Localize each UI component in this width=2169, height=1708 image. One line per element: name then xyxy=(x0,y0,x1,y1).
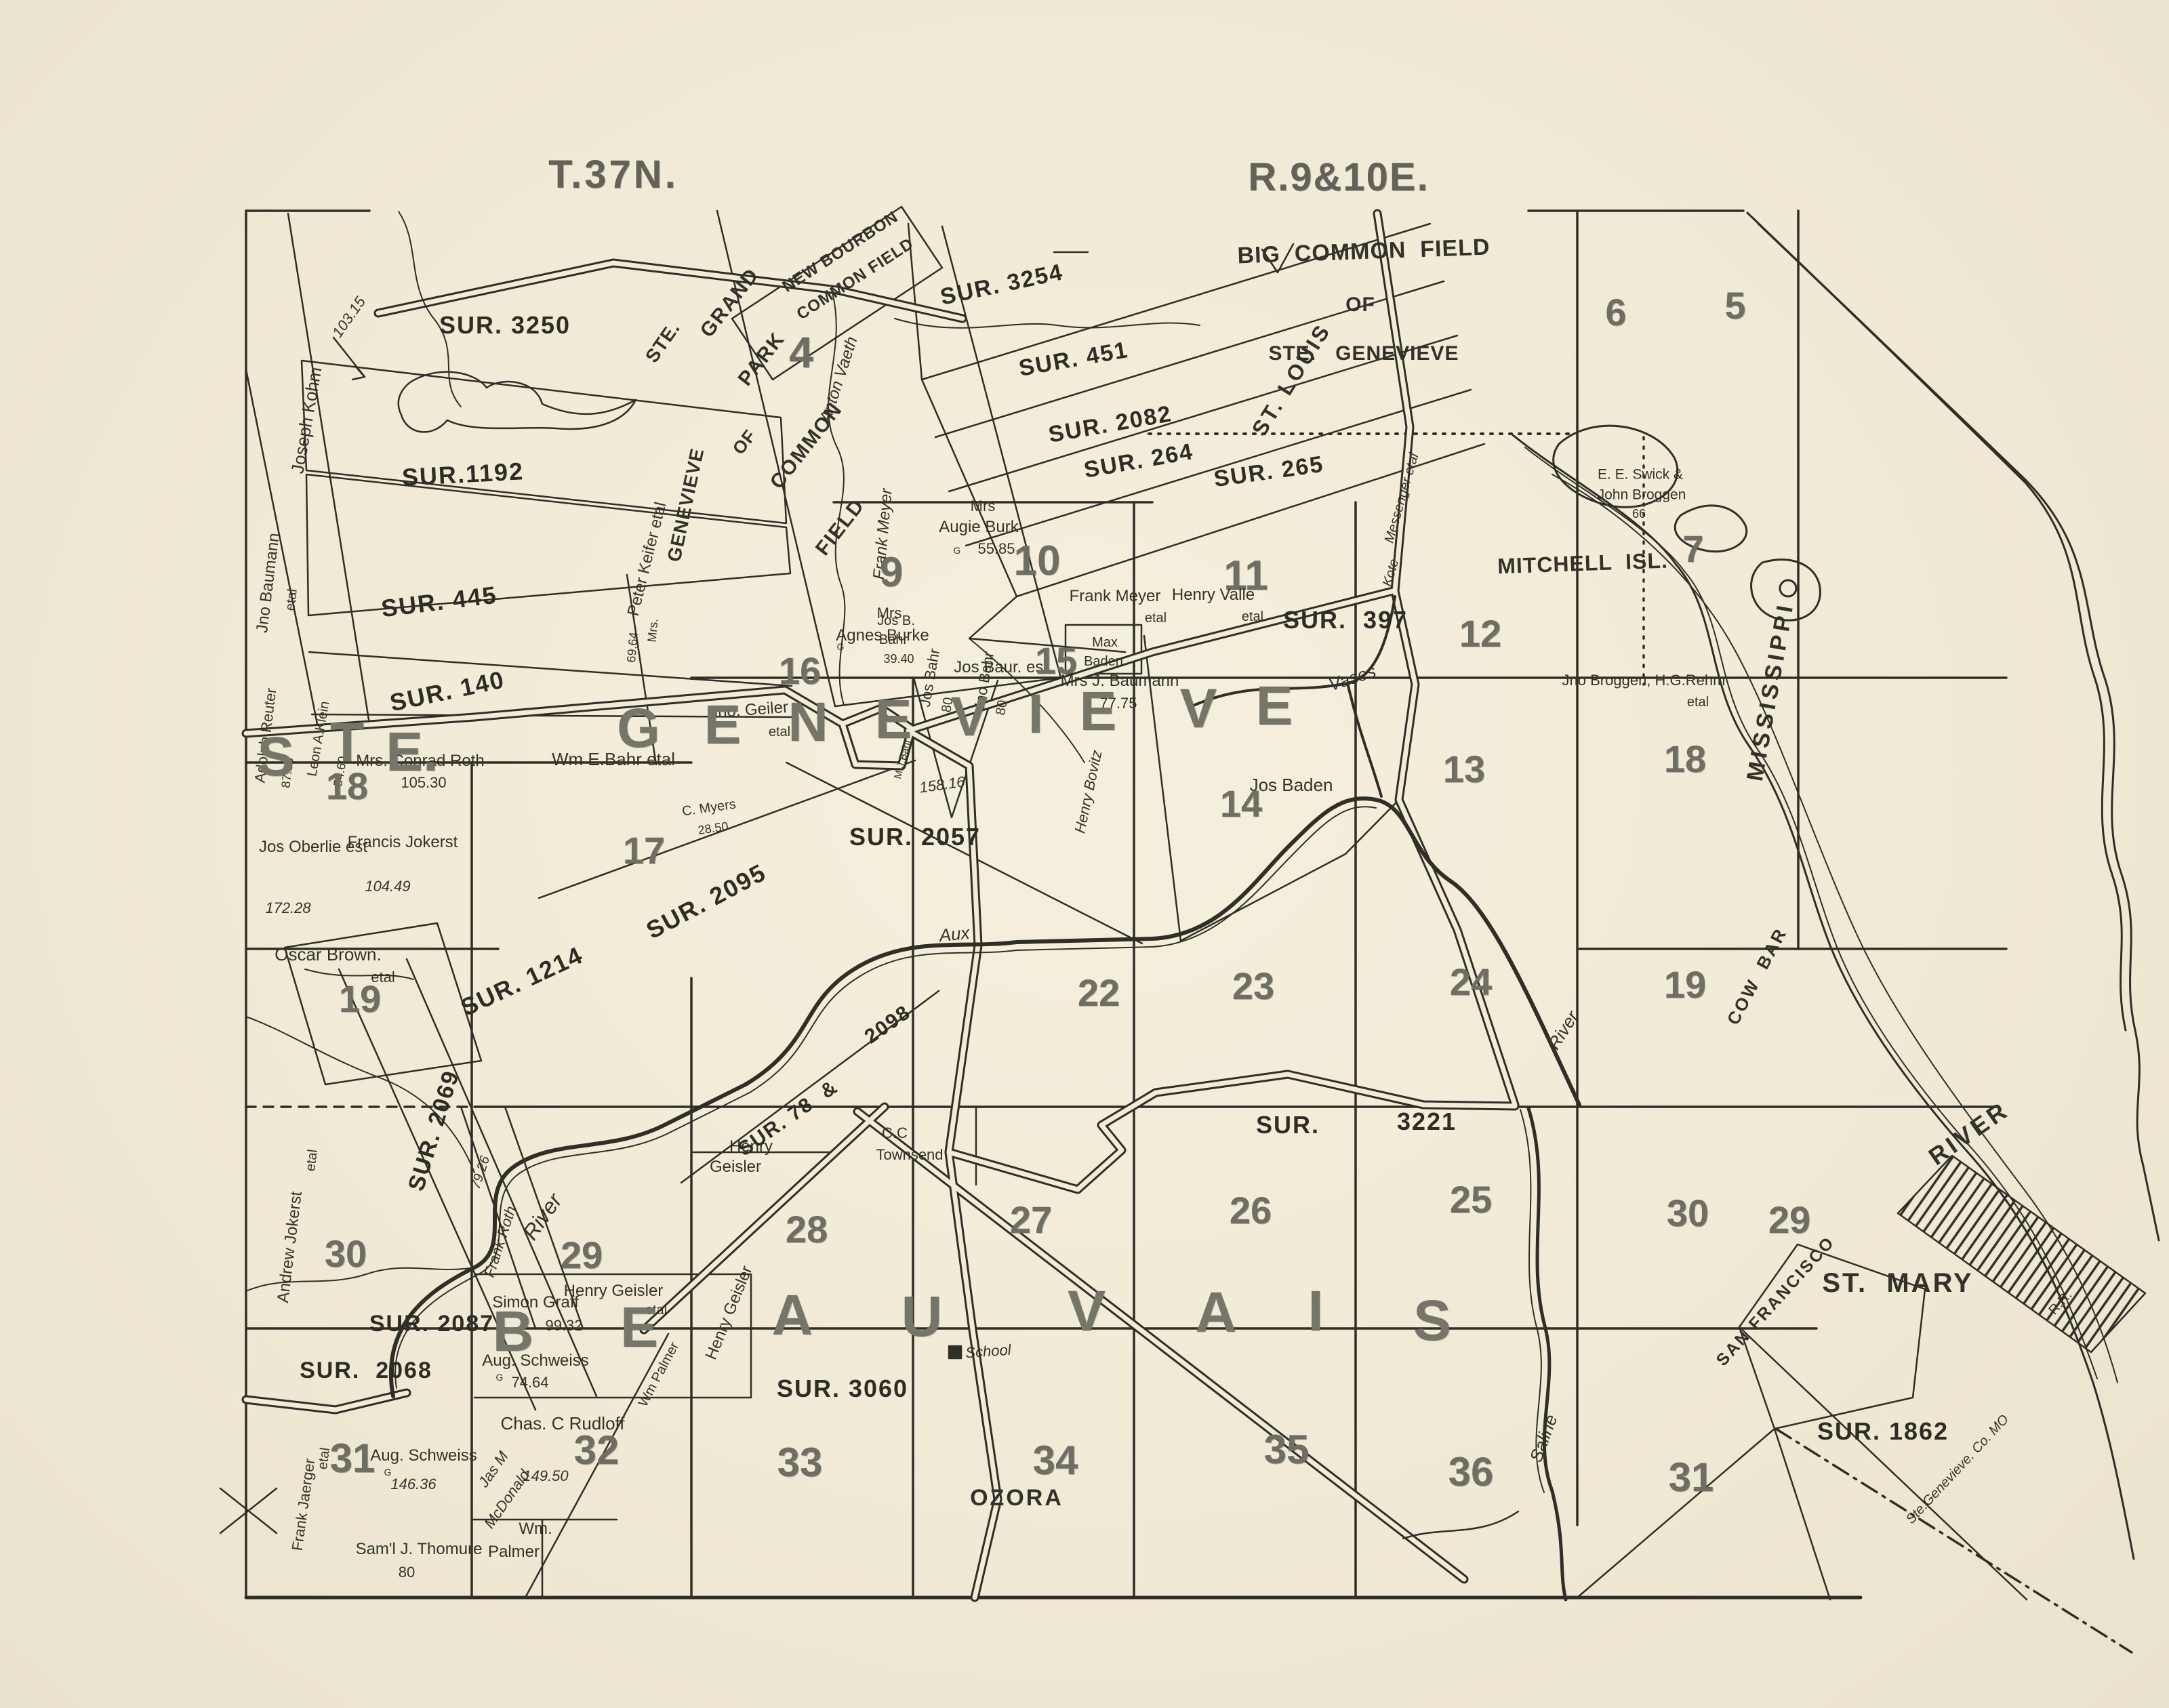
map-label: 3221 xyxy=(1397,1110,1457,1134)
map-label: V xyxy=(1180,681,1217,737)
map-label: S xyxy=(1413,1292,1451,1349)
map-label: Wm. xyxy=(519,1521,552,1537)
map-label: 39.40 xyxy=(883,653,914,665)
map-label: Townsend xyxy=(876,1147,943,1162)
map-label: N xyxy=(788,695,828,750)
map-label: 32 xyxy=(574,1430,620,1471)
map-label: 31 xyxy=(1669,1457,1714,1498)
plat-map: T.37N. R.9&10E. Joseph Kohm103.15SUR. 32… xyxy=(0,0,2169,1708)
map-label: G xyxy=(617,701,660,756)
map-label: SUR. 3060 xyxy=(777,1377,908,1401)
map-label: E xyxy=(875,692,912,748)
map-label: Agnes Burke xyxy=(836,628,929,644)
map-label: MITCHELL ISL. xyxy=(1497,550,1669,577)
map-label: etal xyxy=(316,1447,332,1471)
map-label: 19 xyxy=(339,980,381,1018)
map-label: G xyxy=(837,642,845,651)
map-label: G xyxy=(496,1372,504,1382)
map-label: SUR. xyxy=(1256,1113,1320,1137)
map-label: 30 xyxy=(325,1235,367,1273)
map-label: etal xyxy=(304,1149,320,1172)
map-label: 30 xyxy=(1667,1194,1709,1232)
map-label: OF xyxy=(1345,295,1375,315)
map-label: Baden xyxy=(1084,655,1123,668)
map-label: Frank Meyer xyxy=(1070,588,1161,605)
map-label: A xyxy=(772,1286,813,1343)
map-label: SUR. 397 xyxy=(1283,608,1408,632)
map-label: E. E. Swick & xyxy=(1598,468,1683,482)
map-label: 24 xyxy=(1450,963,1492,1001)
map-label: Aux xyxy=(938,924,970,945)
map-label: E xyxy=(1256,678,1293,734)
map-label: etal xyxy=(1242,610,1263,624)
map-label: Geisler xyxy=(710,1159,761,1175)
map-label: SUR. 2087 xyxy=(369,1312,494,1335)
plat-map-page: { "map": { "township": "T.37N.", "range"… xyxy=(0,0,2169,1708)
map-label: 66 xyxy=(1632,508,1646,520)
map-label: 99.32 xyxy=(545,1318,582,1333)
map-label: etal xyxy=(1687,695,1709,709)
map-label: V xyxy=(1068,1282,1106,1339)
map-label: etal xyxy=(283,588,300,611)
map-label: E. xyxy=(386,725,438,780)
map-label: 33 xyxy=(777,1442,823,1483)
map-label: Max xyxy=(1092,636,1118,649)
map-label: Mrs J. Baumann xyxy=(1061,673,1179,689)
map-label: Henry Valle xyxy=(1172,587,1255,603)
map-label: U xyxy=(901,1288,943,1345)
map-label: OZORA xyxy=(970,1486,1063,1509)
map-label: 5 xyxy=(1724,287,1745,325)
map-label: SUR.1192 xyxy=(401,459,525,489)
map-label: 104.49 xyxy=(365,879,410,894)
map-label: I xyxy=(1308,1282,1323,1339)
map-label: Mrs. xyxy=(646,618,660,643)
map-label: 35 xyxy=(1264,1429,1310,1470)
map-label: B xyxy=(493,1303,534,1360)
map-label: 74.64 xyxy=(511,1375,548,1390)
map-label: 29 xyxy=(1768,1201,1810,1239)
map-label: I xyxy=(1028,687,1044,742)
map-label: 9 xyxy=(880,552,903,594)
map-label: etal xyxy=(371,970,394,985)
range-title: R.9&10E. xyxy=(1248,158,1429,197)
map-label: Sam'l J. Thomure xyxy=(356,1541,483,1558)
map-label: 12 xyxy=(1459,615,1501,653)
map-label: SUR. 3250 xyxy=(439,313,571,338)
map-label: S xyxy=(258,729,295,785)
map-label: 31 xyxy=(330,1438,376,1479)
map-label: E xyxy=(704,697,742,753)
map-label: Augie Burk xyxy=(939,519,1018,535)
map-label: SUR. 2057 xyxy=(849,825,981,849)
map-label: 16 xyxy=(779,652,821,690)
map-label: A xyxy=(1196,1284,1237,1341)
map-label: 10 xyxy=(1014,540,1061,582)
map-label: Palmer xyxy=(488,1544,540,1560)
map-label: 6 xyxy=(1605,293,1626,331)
mississippi-river xyxy=(1513,213,2159,1559)
map-label: ST. MARY xyxy=(1822,1269,1973,1297)
map-label: 4 xyxy=(789,331,813,374)
map-label: 55.85 xyxy=(977,542,1015,556)
map-label: 80 xyxy=(399,1565,415,1580)
map-label: Aug. Schweiss xyxy=(370,1448,477,1464)
map-label: etal xyxy=(1145,611,1167,625)
map-label: 36 xyxy=(1448,1452,1494,1492)
map-label: 19 xyxy=(1664,966,1706,1004)
map-label: 17 xyxy=(623,832,665,870)
map-label: E xyxy=(1080,684,1117,739)
map-label: 25 xyxy=(1450,1181,1492,1219)
map-label: Oscar Brown. xyxy=(275,945,382,963)
map-label: Mrs xyxy=(971,499,996,514)
map-label: Jno Broggen, H.G.Rehm xyxy=(1562,673,1726,688)
map-label: 146.36 xyxy=(390,1477,436,1492)
map-label: School xyxy=(965,1343,1012,1361)
map-label: SUR. 2068 xyxy=(300,1359,432,1382)
map-label: 14 xyxy=(1220,785,1262,823)
map-label: C.C xyxy=(882,1126,908,1141)
map-label: 80 xyxy=(994,699,1010,716)
map-label: 34 xyxy=(1033,1440,1078,1481)
map-label: 172.28 xyxy=(265,901,310,916)
map-label: Francis Jokerst xyxy=(348,834,458,851)
map-label: E xyxy=(620,1299,658,1356)
map-label: 29 xyxy=(561,1236,603,1274)
map-label: 7 xyxy=(1682,530,1703,568)
map-label: Mrs xyxy=(877,606,902,621)
township-title: T.37N. xyxy=(548,155,678,195)
map-label: 26 xyxy=(1230,1192,1272,1229)
map-label: 27 xyxy=(1010,1201,1052,1239)
map-label: 22 xyxy=(1078,974,1120,1012)
map-label: 18 xyxy=(1664,740,1706,778)
map-label: John Broggen xyxy=(1598,488,1686,502)
map-label: 28 xyxy=(786,1211,828,1248)
map-label: 69.64 xyxy=(625,632,640,663)
map-label: 13 xyxy=(1443,750,1485,788)
map-label: 23 xyxy=(1232,967,1274,1005)
map-label: etal xyxy=(769,725,790,739)
map-label: T xyxy=(330,715,364,771)
map-label: V xyxy=(951,689,988,745)
map-label: SUR. 1862 xyxy=(1817,1419,1949,1444)
map-label: Henry xyxy=(729,1139,773,1155)
map-label: G xyxy=(384,1467,392,1477)
map-label: G xyxy=(954,546,961,555)
